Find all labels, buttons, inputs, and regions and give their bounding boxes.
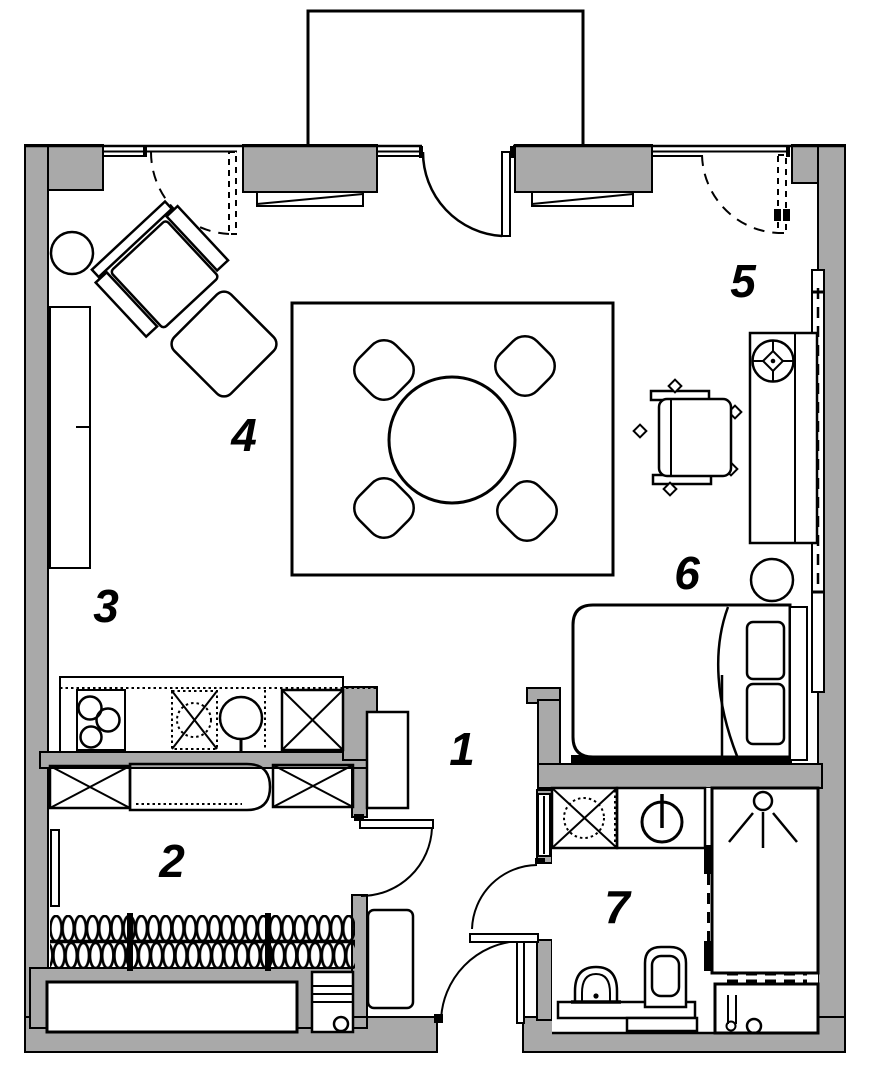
bathroom-door	[470, 858, 545, 942]
floor-plan: 1 2 3 4 5 6 7	[0, 0, 870, 1068]
door-hinge-jamb	[535, 858, 545, 864]
basin	[220, 697, 262, 751]
balcony-door	[423, 152, 510, 236]
nightstand	[751, 559, 793, 601]
room-label-4: 4	[230, 409, 257, 461]
hallway	[367, 712, 413, 1008]
entrance-door	[434, 940, 524, 1023]
small-cabinet	[312, 972, 353, 1032]
window-right-fixed	[652, 152, 702, 157]
dining-chair	[488, 329, 562, 403]
dining-chair	[490, 474, 564, 548]
entrance-door-leaf	[517, 940, 524, 1023]
wardrobe-door	[354, 814, 433, 896]
entrance-door-swing	[441, 941, 519, 1021]
bathroom-door-leaf	[470, 934, 538, 942]
hallway-closet-lower	[368, 910, 413, 1008]
pillow	[747, 622, 784, 679]
balcony	[308, 11, 583, 146]
wardrobe-door-leaf	[360, 820, 433, 828]
balcony-outline	[308, 11, 583, 146]
radiator-right	[532, 192, 633, 206]
room-label-6: 6	[674, 547, 700, 599]
kitchen-sink-unit	[172, 691, 217, 749]
vanity	[715, 984, 818, 1033]
wall-left	[25, 145, 48, 1052]
dining-table	[389, 377, 515, 503]
wall-niche	[51, 830, 59, 906]
radiator-left	[257, 192, 363, 206]
room-label-7: 7	[604, 881, 632, 933]
wall-bathroom-top	[538, 764, 822, 788]
wardrobe-cabinet-right	[273, 765, 353, 807]
kitchen-cabinet	[282, 690, 343, 750]
windows-top	[103, 146, 790, 158]
room-label-2: 2	[158, 835, 185, 887]
wardrobe-drawer-unit	[130, 764, 270, 810]
bookshelf	[50, 307, 90, 568]
room-label-3: 3	[93, 580, 119, 632]
low-shelf	[47, 982, 297, 1032]
pillow	[747, 684, 784, 744]
window-handle	[774, 209, 781, 221]
plinth-lower	[627, 1018, 697, 1031]
wardrobe-cabinet-left	[50, 766, 130, 808]
wall-bathroom-left-lower	[537, 940, 552, 1020]
side-table	[51, 232, 93, 274]
hallway-closet-upper	[367, 712, 408, 808]
french-window-right-swing	[702, 155, 778, 233]
hob	[77, 690, 125, 750]
window-center	[377, 152, 422, 157]
french-window-right-leaf	[778, 155, 786, 233]
kitchen-counter	[60, 677, 377, 752]
headboard	[790, 607, 807, 760]
window-handle	[783, 209, 790, 221]
chair-caster	[634, 425, 647, 438]
balcony-door-swing	[423, 152, 502, 236]
office-chair-seat	[659, 399, 731, 476]
wardrobe-door-swing	[361, 828, 432, 896]
window-jamb	[786, 146, 790, 157]
bed	[573, 605, 807, 760]
wall-top-block-a	[243, 145, 377, 192]
rail-divider	[265, 913, 271, 971]
rail-divider	[127, 913, 133, 971]
bathroom-door-swing	[472, 865, 537, 929]
desk-fan-icon	[753, 341, 794, 382]
room-label-1: 1	[449, 723, 475, 775]
french-window-left-leaf	[229, 152, 236, 234]
toilet	[645, 947, 686, 1007]
room-label-5: 5	[730, 255, 757, 307]
floor-plan-page: 1 2 3 4 5 6 7	[0, 0, 870, 1068]
window-fixed-left	[103, 152, 147, 157]
clothes-rail	[50, 913, 355, 971]
office-chair	[634, 380, 742, 496]
window-jamb	[143, 146, 147, 156]
french-window-right	[702, 155, 790, 233]
wall-top-block-b	[515, 145, 652, 192]
balcony-door-leaf	[502, 152, 510, 236]
